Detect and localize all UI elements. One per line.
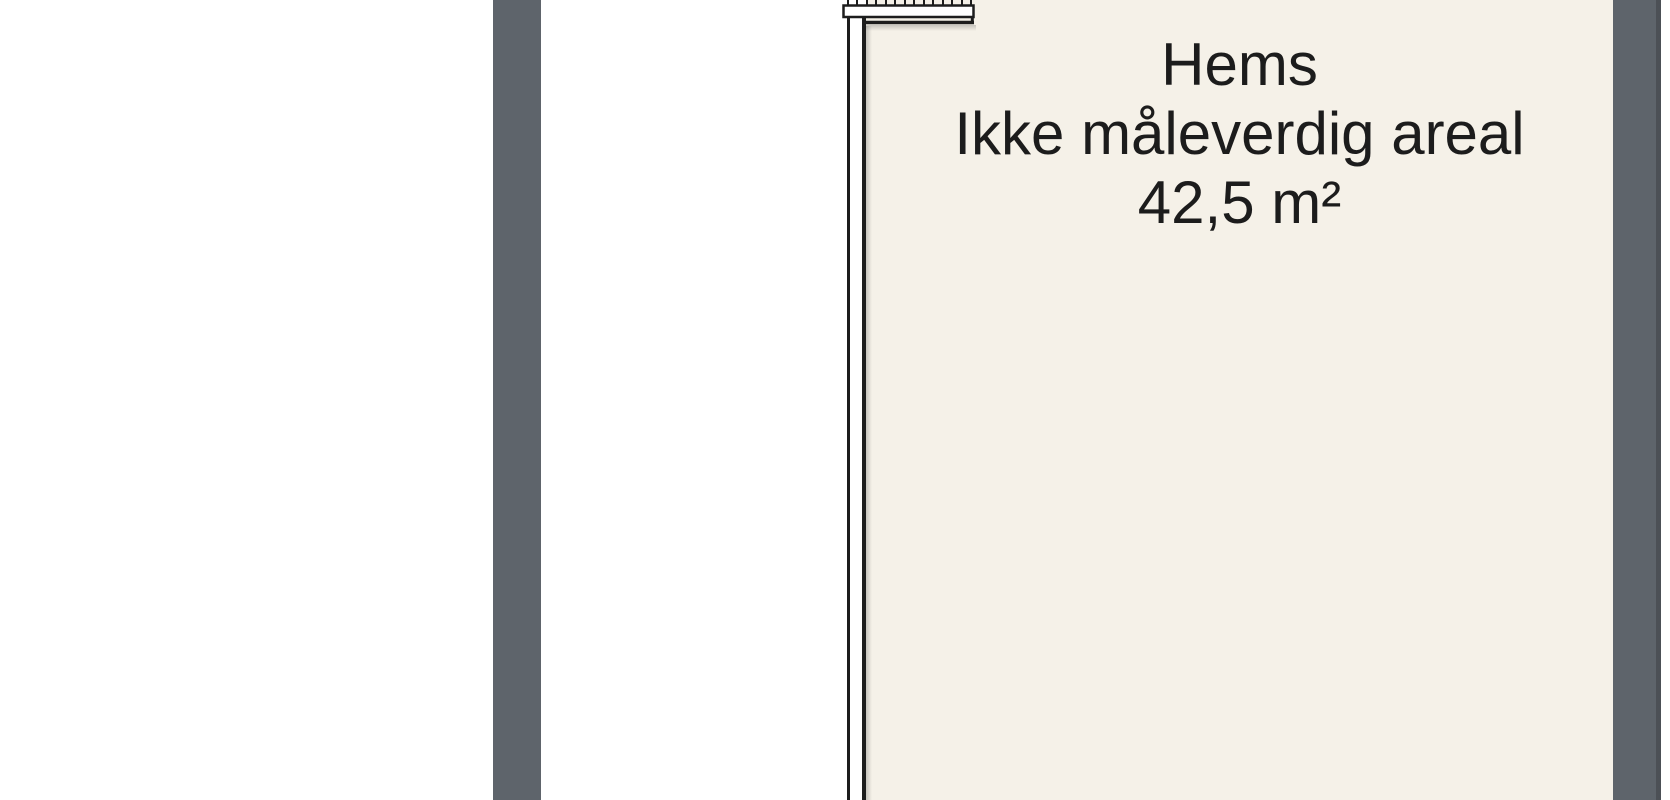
stair-ladder-icon	[840, 0, 980, 30]
exterior-wall-right	[1613, 0, 1661, 800]
interior-wall	[847, 16, 866, 800]
room-title: Hems	[866, 30, 1613, 99]
railing-bar	[844, 6, 974, 18]
floorplan-canvas: Hems Ikke måleverdig areal 42,5 m²	[0, 0, 1670, 800]
room-area-value: 42,5 m²	[866, 168, 1613, 237]
stair-tick-marks	[848, 0, 971, 5]
exterior-wall-left	[493, 0, 541, 800]
room-label-block: Hems Ikke måleverdig areal 42,5 m²	[866, 30, 1613, 237]
room-area-note: Ikke måleverdig areal	[866, 99, 1613, 168]
